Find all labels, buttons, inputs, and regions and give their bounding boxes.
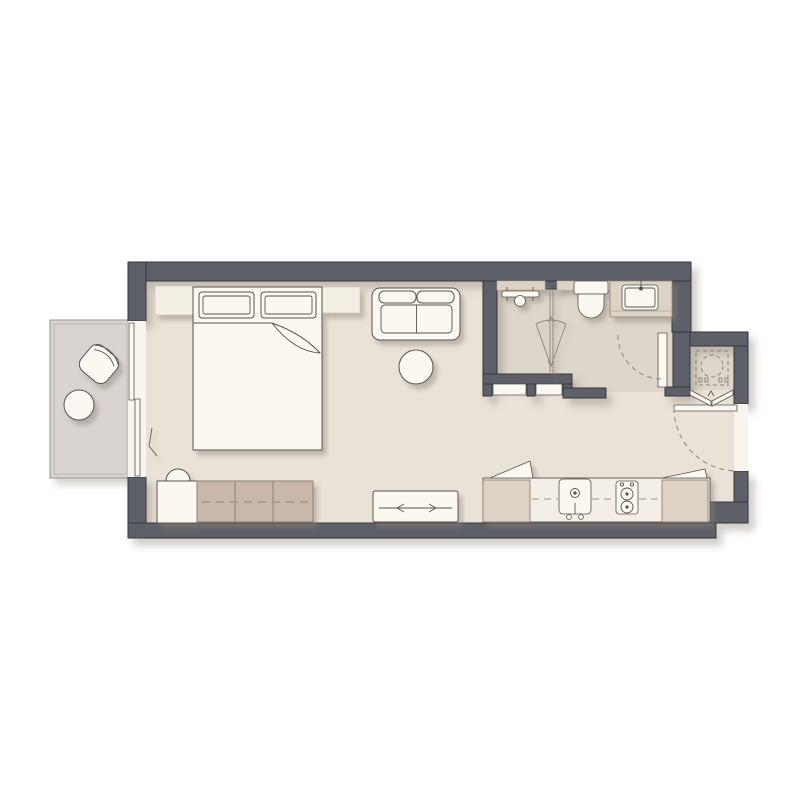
- nightstand-left: [155, 286, 193, 315]
- wall-closet-left-foot: [665, 387, 690, 396]
- balcony: [50, 320, 131, 478]
- wall-step-block: [710, 502, 748, 523]
- balcony-sliding-door-panel-2: [135, 399, 140, 476]
- wall-bottom: [128, 523, 716, 538]
- floor-plan-drawing: [0, 0, 800, 800]
- wall-right-upper: [672, 281, 691, 332]
- shower-head: [515, 296, 526, 307]
- wall-stub-b: [527, 384, 535, 396]
- tv-sideboard: [373, 491, 458, 522]
- sink-tap-handle: [579, 515, 584, 520]
- wall-bathroom-bottom-band: [483, 374, 572, 384]
- wall-stub-a: [483, 384, 492, 396]
- cooktop: [616, 481, 638, 514]
- toilet-bowl: [578, 294, 604, 318]
- wall-closet-top: [690, 332, 748, 346]
- wardrobe-taupe-sections: [197, 481, 313, 522]
- entry-door-threshold: [734, 404, 748, 471]
- entry-door-leaf: [674, 405, 737, 411]
- burner-center: [625, 492, 628, 495]
- sofa-back-cushion: [379, 291, 416, 303]
- shower-shelf-band: [497, 281, 545, 290]
- balcony-sliding-door-panel-1: [129, 323, 134, 400]
- double-bed: [193, 287, 322, 450]
- wc-sliding-panel: [536, 384, 562, 395]
- wall-bathroom-left: [483, 281, 497, 384]
- basin-faucet: [639, 287, 643, 291]
- wall-vanity-bottom: [563, 388, 606, 398]
- closet-floor: [690, 346, 734, 390]
- base-cabinet-right: [662, 480, 708, 522]
- toilet-tank: [574, 281, 608, 294]
- wall-top: [128, 262, 691, 281]
- shower-sliding-panel: [493, 384, 526, 395]
- dresser: [157, 481, 197, 523]
- kitchen-sink: [559, 479, 591, 519]
- wall-right-lower: [734, 471, 748, 503]
- base-cabinet-left: [483, 480, 530, 522]
- wall-closet-right: [734, 346, 748, 404]
- wall-left-lower: [128, 477, 146, 523]
- burner-center: [625, 505, 628, 508]
- wall-shower-divider-stub: [545, 281, 557, 289]
- sofa: [372, 288, 460, 340]
- floor-plan-canvas: [0, 0, 800, 800]
- sofa-back-cushion: [417, 291, 454, 303]
- sink-drain-center: [573, 491, 576, 494]
- nightstand-right: [322, 287, 360, 313]
- vanity: [610, 277, 672, 317]
- wall-closet-left: [673, 332, 690, 387]
- ottoman-table: [399, 350, 433, 384]
- wall-left-upper: [128, 262, 146, 321]
- balcony-round-table: [64, 390, 94, 420]
- sink-tap-handle: [567, 515, 572, 520]
